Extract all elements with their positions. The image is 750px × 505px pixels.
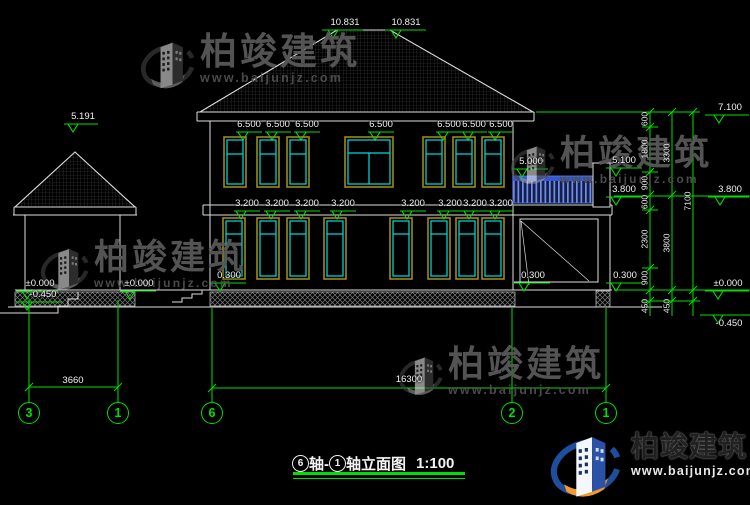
elevation-label-plinth-main-left: 0.300: [217, 270, 241, 281]
dim-chain-value: 2300: [641, 230, 650, 249]
elevation-label-balcony-post: 5.100: [612, 155, 636, 166]
window-head-level: 6.500: [437, 119, 461, 130]
dim-chain-value: 450: [663, 299, 672, 313]
elevation-label-right-top: 7.100: [718, 102, 742, 113]
elevation-label-pavilion-roof: 5.191: [71, 111, 95, 122]
elevation-label-plinth-annex-right: 0.300: [613, 270, 637, 281]
plinth-bands: [15, 291, 610, 307]
elevation-label-right-low: -0.450: [716, 318, 743, 329]
elevation-label-plinth-main-right: 0.300: [521, 270, 545, 281]
title-mid: 轴-: [309, 453, 329, 474]
axis-bubble-number: 6: [209, 406, 216, 420]
elevation-label-balcony-rail: 5.000: [519, 156, 543, 167]
logo-brand: 柏竣建筑: [631, 431, 750, 463]
window: [390, 218, 412, 279]
window: [482, 137, 504, 187]
dim-chain-value: 600: [641, 195, 650, 209]
window-head-level: 6.500: [369, 119, 393, 130]
window: [257, 137, 279, 187]
dim-chain-value: 900: [641, 176, 650, 190]
dim-chain-value: 1800: [641, 140, 650, 159]
main-roof: [200, 30, 533, 112]
window: [224, 137, 246, 187]
pavilion-roof: [15, 152, 135, 207]
window: [482, 218, 504, 279]
elevation-label-ground-porch: ±0.000: [125, 278, 154, 289]
dim-chain-value: 3300: [663, 144, 672, 163]
axis-bubble-number: 1: [115, 406, 122, 420]
building-outline: [0, 112, 662, 313]
title-axis-from: 6: [292, 455, 309, 472]
linework-svg: [0, 0, 750, 505]
title-underline-thin: [293, 478, 465, 479]
dim-chain-value: 450: [641, 299, 650, 313]
window-head-level: 3.200: [235, 198, 259, 209]
window: [428, 218, 450, 279]
elevation-label-ground-pavilion-low: -0.450: [30, 289, 57, 300]
brand-logo-icon: [546, 431, 626, 499]
axis-bubble-number: 2: [509, 406, 516, 420]
window-head-level: 3.200: [331, 198, 355, 209]
window: [324, 218, 346, 279]
elevation-label-ridge-left: 10.831: [330, 17, 359, 28]
window: [287, 218, 309, 279]
elevation-label-right-mid: 3.800: [718, 184, 742, 195]
logo-url: www.baijunjz.com: [631, 464, 750, 478]
elevation-label-right-zero: ±0.000: [714, 278, 743, 289]
window: [423, 137, 445, 187]
cad-elevation-drawing: 柏竣建筑 www.baijunjz.com 柏竣建筑 www.baijunjz.…: [0, 0, 750, 505]
title-scale: 1:100: [416, 455, 454, 472]
title-suffix: 轴立面图: [346, 453, 406, 474]
window-head-level: 3.200: [489, 198, 513, 209]
window-head-level: 3.200: [265, 198, 289, 209]
axis-bubble-number: 1: [603, 406, 610, 420]
brand-logo: 柏竣建筑 www.baijunjz.com: [546, 431, 750, 499]
window-head-level: 6.500: [237, 119, 261, 130]
elevation-label-balcony-slab: 3.800: [612, 184, 636, 195]
title-underline-thick: [293, 472, 465, 475]
dim-chain-value: 3800: [663, 234, 672, 253]
window-head-level: 6.500: [489, 119, 513, 130]
window: [257, 218, 279, 279]
balcony-end-post: [593, 163, 610, 207]
dim-main-width: 16300: [396, 374, 422, 385]
dim-chain-value: 600: [641, 112, 650, 126]
dim-chain-value: 7100: [684, 192, 693, 211]
dim-chain-value: 900: [641, 271, 650, 285]
dim-pavilion-width: 3660: [62, 375, 83, 386]
window: [345, 137, 393, 187]
balcony-railing: [513, 176, 593, 203]
window: [287, 137, 309, 187]
elevation-label-ridge-right: 10.831: [391, 17, 420, 28]
window-head-level: 3.200: [295, 198, 319, 209]
title-axis-to: 1: [329, 455, 346, 472]
window-head-level: 3.200: [401, 198, 425, 209]
window-head-level: 6.500: [295, 119, 319, 130]
window: [453, 137, 475, 187]
window-head-level: 3.200: [438, 198, 462, 209]
window-head-level: 3.200: [463, 198, 487, 209]
window-head-level: 6.500: [462, 119, 486, 130]
window-head-level: 6.500: [266, 119, 290, 130]
drawing-title: 6轴-1轴立面图1:100: [292, 453, 454, 474]
window: [456, 218, 478, 279]
axis-bubble-number: 3: [26, 406, 33, 420]
elevation-label-ground-pavilion: ±0.000: [26, 278, 55, 289]
